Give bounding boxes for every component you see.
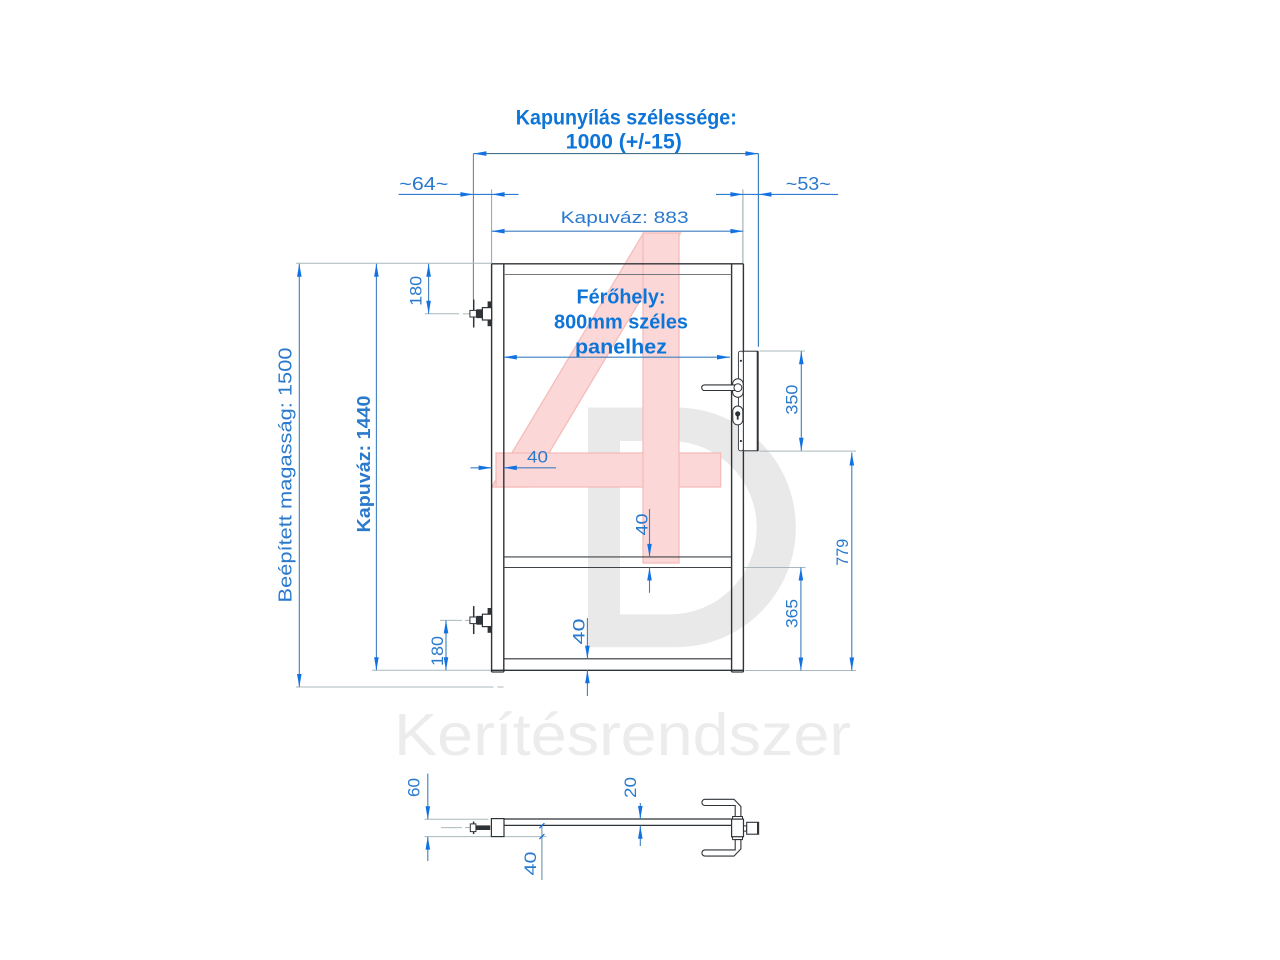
svg-text:~64~: ~64~ bbox=[399, 174, 448, 194]
svg-text:~53~: ~53~ bbox=[786, 174, 831, 194]
svg-text:800mm széles: 800mm széles bbox=[554, 311, 688, 334]
svg-text:Kerítésrendszer: Kerítésrendszer bbox=[394, 702, 851, 768]
svg-text:40: 40 bbox=[634, 514, 652, 536]
svg-text:779: 779 bbox=[833, 539, 852, 566]
svg-text:Beépített magasság: 1500: Beépített magasság: 1500 bbox=[275, 348, 296, 603]
svg-text:Kapunyílás szélessége:: Kapunyílás szélessége: bbox=[516, 107, 737, 130]
svg-text:Férőhely:: Férőhely: bbox=[577, 286, 666, 309]
svg-text:40: 40 bbox=[522, 852, 540, 876]
svg-text:350: 350 bbox=[783, 385, 802, 415]
svg-text:panelhez: panelhez bbox=[575, 336, 667, 359]
svg-text:1000 (+/-15): 1000 (+/-15) bbox=[566, 131, 682, 154]
svg-text:365: 365 bbox=[783, 599, 802, 628]
svg-text:180: 180 bbox=[407, 276, 426, 306]
svg-text:Kapuváz: 1440: Kapuváz: 1440 bbox=[353, 396, 374, 533]
svg-text:40: 40 bbox=[571, 619, 589, 645]
svg-text:180: 180 bbox=[428, 636, 447, 666]
svg-text:60: 60 bbox=[406, 778, 424, 797]
svg-text:20: 20 bbox=[622, 777, 640, 798]
svg-text:Kapuváz: 883: Kapuváz: 883 bbox=[561, 209, 689, 227]
svg-text:40: 40 bbox=[527, 449, 548, 467]
